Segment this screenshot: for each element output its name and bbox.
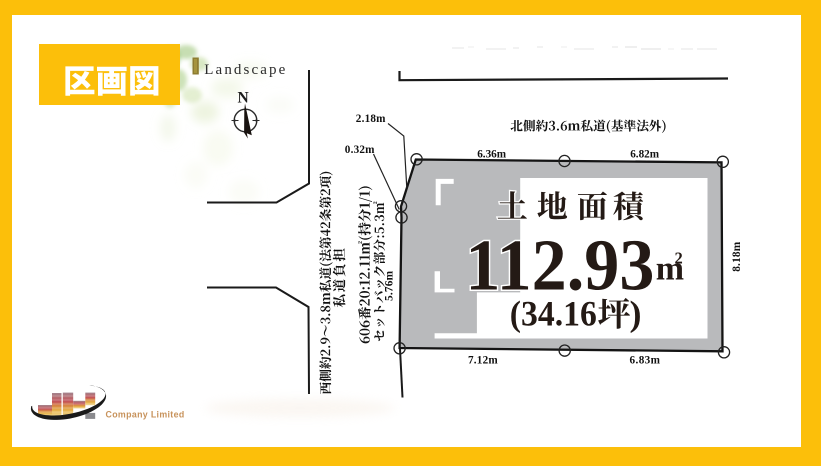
svg-text:): ) (630, 294, 642, 334)
svg-text:N: N (238, 90, 249, 107)
svg-text:Company Limited: Company Limited (106, 410, 185, 420)
svg-text:Landscape: Landscape (204, 62, 287, 78)
svg-text:2: 2 (675, 249, 683, 268)
svg-text:0.32m: 0.32m (345, 144, 375, 156)
svg-text:6.83m: 6.83m (630, 354, 661, 366)
svg-text:2.18m: 2.18m (356, 113, 386, 125)
svg-text:6.36m: 6.36m (477, 148, 507, 160)
svg-text:(34.16: (34.16 (510, 294, 597, 334)
svg-text:6.82m: 6.82m (630, 148, 660, 160)
svg-text:5.76m: 5.76m (383, 270, 395, 301)
svg-text:8.18m: 8.18m (731, 241, 743, 272)
svg-text:7.12m: 7.12m (468, 354, 498, 366)
